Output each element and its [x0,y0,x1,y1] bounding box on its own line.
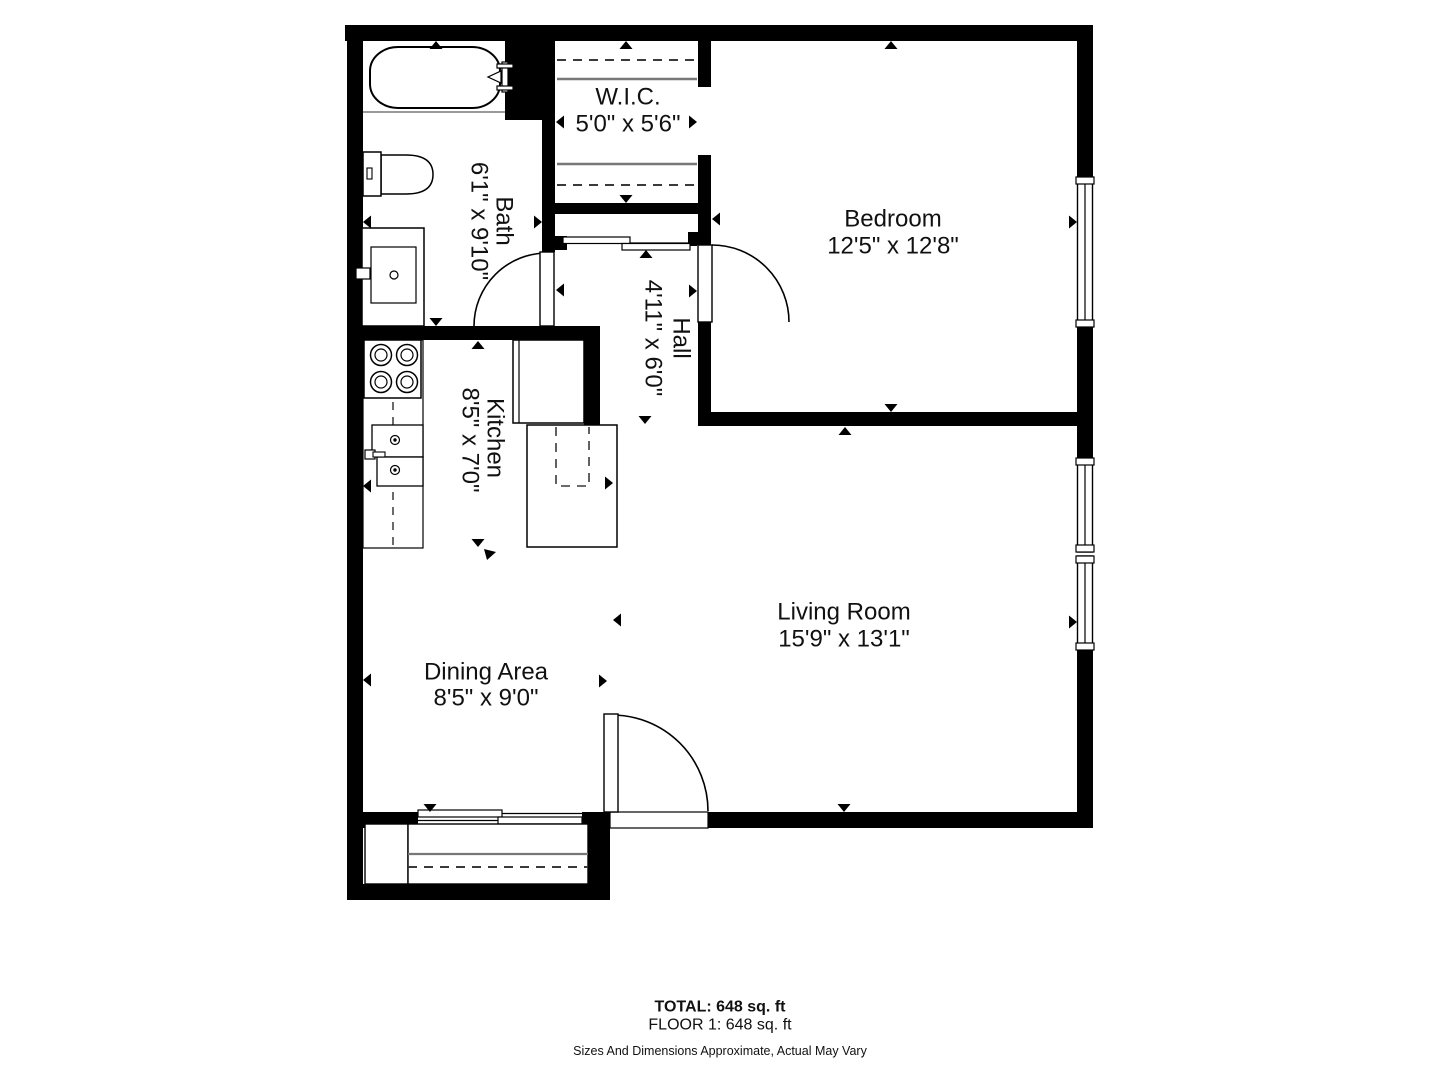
wall-left [347,25,363,900]
wall-wic-left [542,41,555,252]
dimension-arrow [534,216,542,229]
wall-right-lower [1077,650,1093,828]
toilet [363,152,433,196]
dimension-arrow [885,404,898,412]
floor-area-text: FLOOR 1: 648 sq. ft [648,1017,792,1034]
living-room-label: Living Room [777,599,910,626]
wall-kitchen-hall [584,340,600,426]
dimension-arrow [689,285,697,298]
bedroom-window [1076,177,1094,327]
wic-label: W.I.C. [595,84,660,111]
kitchen-island [527,425,617,547]
kitchen-label: Kitchen [482,398,509,478]
dimension-arrow [430,318,443,326]
bath-dims: 6'1" x 9'10" [466,162,493,280]
kitchen-corner-counter [513,340,584,423]
wall-top [345,25,1093,41]
bedroom-door [697,245,789,322]
wall-right-mid [1077,327,1093,458]
dimension-arrow [689,116,697,129]
dimension-arrow [556,284,564,297]
closet-cubby [365,824,408,884]
dimension-arrow [838,804,851,812]
wall-linen-stub-right [688,232,711,246]
dining-area-label: Dining Area [424,659,549,686]
dimension-arrow [640,250,653,258]
hall-label: Hall [668,317,695,358]
dimension-arrow [363,674,371,687]
entry-door [604,714,708,828]
wall-bath-bottom [347,326,600,340]
bathtub [370,47,500,108]
dimension-arrow [472,341,485,349]
wall-wic-bottom [555,203,711,214]
bedroom-label: Bedroom [844,206,941,233]
dimension-arrow [556,116,564,129]
dining-closet-sliding-door [418,810,582,824]
dimension-arrow [620,41,633,49]
wall-bedroom-left-b [698,155,711,245]
footer: TOTAL: 648 sq. ft FLOOR 1: 648 sq. ft Si… [573,999,867,1059]
floor-plan: W.I.C. 5'0" x 5'6" Bedroom 12'5" x 12'8"… [0,0,1440,1080]
dimension-arrow [363,216,371,229]
living-window-2 [1076,556,1094,650]
kitchen-dims: 8'5" x 7'0" [457,388,484,493]
stove [364,340,421,398]
wall-bedroom-left-c [698,322,711,426]
living-window-1 [1076,458,1094,552]
wall-bath-chase [505,41,545,120]
hall-dims: 4'11" x 6'0" [640,280,667,397]
hall-closet-sliding-door [563,237,690,250]
living-room-dims: 15'9" x 13'1" [778,626,910,653]
dimension-arrow [472,539,485,547]
wall-bottom-living [708,812,1093,828]
dining-area-dims: 8'5" x 9'0" [434,685,539,712]
wall-closet-bottom [347,884,610,900]
dimension-arrow [639,416,652,424]
room-labels: W.I.C. 5'0" x 5'6" Bedroom 12'5" x 12'8"… [424,84,959,712]
bedroom-dims: 12'5" x 12'8" [827,233,959,260]
bath-vanity [356,228,424,326]
dimension-arrow [484,549,496,560]
total-area-text: TOTAL: 648 sq. ft [655,999,787,1016]
dimension-arrow [1069,616,1077,629]
dimension-arrow [613,614,621,627]
wall-bedroom-bottom [698,412,1093,426]
wic-dims: 5'0" x 5'6" [576,111,681,138]
bath-label: Bath [491,196,518,245]
dimension-arrow [599,675,607,688]
dimension-arrow [430,41,443,49]
disclaimer-text: Sizes And Dimensions Approximate, Actual… [573,1044,867,1058]
dimension-arrow [620,195,633,203]
wall-bedroom-left-a [698,25,711,87]
entry-closet [365,824,588,884]
dimension-arrow [885,41,898,49]
dimension-arrow [839,427,852,435]
wall-right-upper [1077,25,1093,177]
dimension-arrow [712,213,720,226]
dimension-arrow [1069,216,1077,229]
floor-plan-page: W.I.C. 5'0" x 5'6" Bedroom 12'5" x 12'8"… [0,0,1440,1080]
